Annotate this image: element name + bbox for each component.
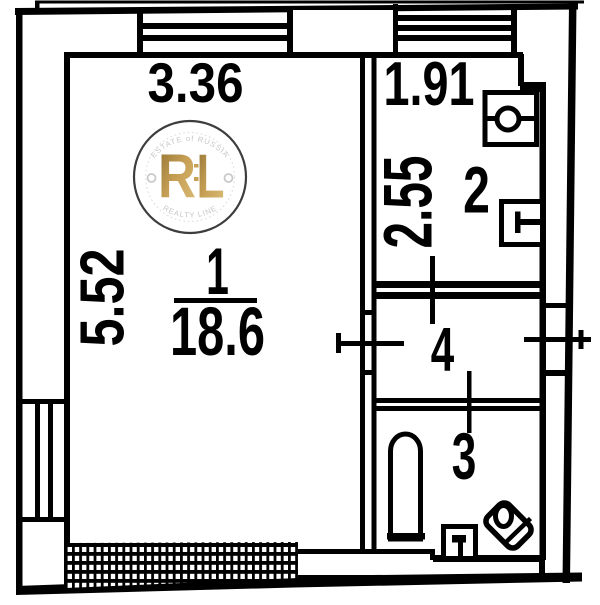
- svg-text:4: 4: [431, 316, 455, 385]
- svg-text:18.6: 18.6: [170, 293, 265, 370]
- svg-text:R: R: [158, 143, 196, 212]
- svg-text:5.52: 5.52: [69, 249, 138, 347]
- svg-text:2: 2: [463, 154, 490, 227]
- svg-text:3.36: 3.36: [148, 51, 244, 114]
- svg-text:L: L: [197, 143, 225, 212]
- svg-text:2.55: 2.55: [370, 156, 447, 249]
- svg-text:3: 3: [452, 419, 477, 493]
- svg-text:1.91: 1.91: [384, 50, 475, 119]
